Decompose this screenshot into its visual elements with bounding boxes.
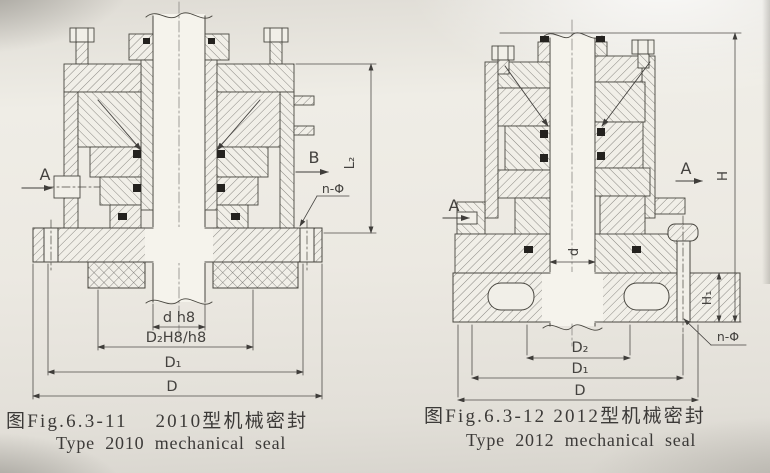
section-a-label: A (40, 165, 51, 184)
figure-2010-drawing: A B n-Φ L₂ d h8 D₂H8/h8 D₁ (22, 2, 376, 399)
set-screw (294, 126, 314, 135)
caption-2012-en: Type 2012 mechanical seal (466, 430, 696, 451)
gland-bolt-head (264, 28, 288, 42)
section-a-left-label: A (449, 196, 460, 215)
gland-bolt-stud (76, 42, 88, 64)
caption-2010-en: Type 2010 mechanical seal (56, 433, 286, 454)
shaft-2010 (146, 2, 212, 336)
shaft-clearance (145, 227, 213, 263)
drive-collar (538, 42, 550, 64)
section-b-label: B (309, 148, 320, 167)
seal-ring-stack (595, 168, 650, 196)
gland-bolt-head (632, 40, 654, 54)
figure-2012-drawing: d (443, 20, 746, 400)
dim-label-shaft-fit: d h8 (163, 310, 195, 326)
seat-ring (213, 262, 298, 288)
clamp-bolt-shank (677, 241, 690, 322)
dim-label-D1: D₁ (165, 355, 182, 371)
bolt-note-leader (300, 196, 317, 226)
section-a-right-label: A (681, 159, 692, 178)
dim-label-H1: H₁ (699, 291, 714, 305)
housing-wall (280, 92, 294, 232)
dim-label-D1: D₁ (572, 361, 589, 377)
housing-wall (485, 62, 498, 218)
dim-label-H: H (715, 171, 731, 181)
dim-label-L2: L₂ (343, 157, 358, 169)
caption-2012-zh: 图Fig.6.3-12 2012型机械密封 (424, 401, 706, 428)
drive-collar (205, 34, 229, 60)
flange-slot-hole (488, 283, 534, 310)
gland-plate (595, 56, 642, 82)
seat-ring (88, 262, 145, 288)
seat-block (455, 234, 550, 273)
shaft-sleeve (205, 60, 217, 210)
set-screw (294, 96, 314, 105)
dim-label-D2: D₂ (572, 340, 589, 356)
seal-drawings: A B n-Φ L₂ d h8 D₂H8/h8 D₁ (0, 0, 770, 402)
gland-bolt-head (70, 28, 94, 42)
set-screw (655, 198, 685, 214)
drive-collar (129, 34, 153, 60)
gland-bolt-head (492, 46, 514, 60)
dim-label-D: D (574, 383, 585, 399)
gland-bolt-stud (270, 42, 282, 64)
scanned-page: A B n-Φ L₂ d h8 D₂H8/h8 D₁ (0, 0, 770, 473)
gland-bolt-stud (498, 60, 509, 74)
bolt-note-label: n-Φ (717, 329, 739, 344)
flange-slot-hole (624, 283, 669, 310)
caption-2010-zh: 图Fig.6.3-11 2010型机械密封 (6, 406, 308, 433)
housing-wall (64, 92, 78, 232)
shaft-clearance (542, 272, 603, 323)
dim-label-seat-fit: D₂H8/h8 (146, 330, 206, 346)
gland-plate (64, 64, 141, 92)
spring-chamber (498, 88, 550, 126)
bolt-note-leader (684, 319, 711, 345)
flange-2012 (453, 216, 740, 332)
bolt-note-label: n-Φ (322, 181, 344, 196)
gland-plate (217, 64, 294, 92)
shaft-sleeve (141, 60, 153, 210)
dim-label-shaft-dia: d (567, 248, 582, 256)
seal-ring-stack (498, 170, 550, 198)
dim-label-D: D (166, 379, 177, 395)
